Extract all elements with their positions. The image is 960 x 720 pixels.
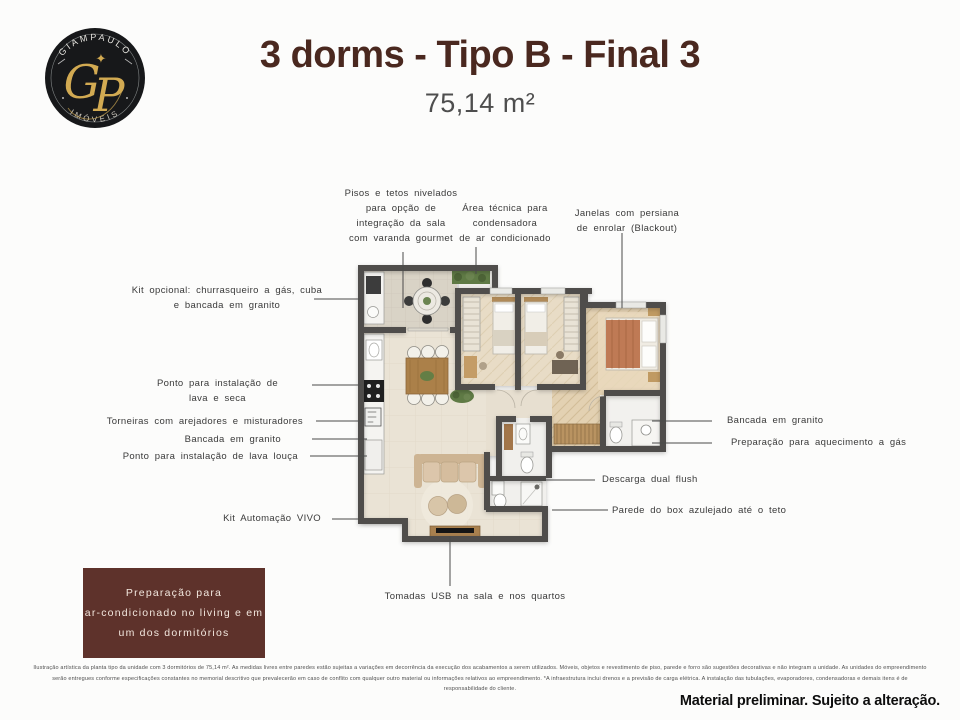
annotation-tomadas-usb: Tomadas USB na sala e nos quartos bbox=[377, 589, 573, 604]
annotation-kit-automacao: Kit Automação VIVO bbox=[150, 511, 321, 526]
annotation-bancada-dir: Bancada em granito bbox=[727, 413, 823, 428]
cuba-sink bbox=[368, 307, 379, 318]
highlight-box-ar-condicionado: Preparação para ar-condicionado no livin… bbox=[83, 568, 265, 658]
bath1-sink bbox=[516, 424, 530, 444]
nightstand bbox=[648, 372, 660, 382]
annotation-torneiras: Torneiras com arejadores e misturadores bbox=[103, 414, 303, 429]
wardrobe-1 bbox=[463, 297, 480, 351]
bath1-vanity bbox=[504, 424, 513, 450]
annotation-lava-e-seca: Ponto para instalação de lava e seca bbox=[125, 376, 310, 406]
pouf bbox=[429, 497, 448, 516]
annotation-aquecimento-gas: Preparação para aquecimento a gás bbox=[731, 435, 906, 450]
bed-1-headboard bbox=[492, 297, 516, 302]
annotation-janelas: Janelas com persiana de enrolar (Blackou… bbox=[549, 206, 705, 236]
sliding-door bbox=[408, 328, 448, 331]
annotation-parede-box: Parede do box azulejado até o teto bbox=[612, 503, 786, 518]
desk-1 bbox=[464, 356, 477, 378]
annotation-bancada-esq: Bancada em granito bbox=[101, 432, 281, 447]
desk-2 bbox=[552, 360, 578, 374]
toilet bbox=[610, 427, 622, 443]
toilet bbox=[521, 457, 533, 473]
cooktop bbox=[363, 380, 384, 402]
shower-head bbox=[535, 485, 540, 490]
annotation-descarga: Descarga dual flush bbox=[602, 472, 698, 487]
bed-2-headboard bbox=[524, 297, 548, 302]
grill bbox=[366, 276, 381, 294]
preliminary-notice: Material preliminar. Sujeito a alteração… bbox=[680, 693, 940, 709]
unit-area: 75,14 m² bbox=[0, 88, 960, 119]
annotation-lava-louca: Ponto para instalação de lava louça bbox=[100, 449, 298, 464]
floorplan-marketing-slide: { "logo": { "name_top": "GIAMPAULO", "na… bbox=[0, 0, 960, 720]
tv bbox=[436, 528, 474, 533]
wardrobe-2 bbox=[564, 297, 579, 351]
toilet bbox=[494, 494, 506, 508]
bath2-sink bbox=[492, 481, 504, 495]
pouf bbox=[448, 495, 467, 514]
sofa bbox=[423, 462, 440, 482]
fridge bbox=[365, 440, 382, 470]
legal-disclaimer: Ilustração artística da planta tipo da u… bbox=[25, 663, 935, 695]
annotation-kit-opcional: Kit opcional: churrasqueiro a gás, cuba … bbox=[122, 283, 332, 313]
centerpiece-plant bbox=[420, 371, 434, 381]
page-title: 3 dorms - Tipo B - Final 3 bbox=[0, 34, 960, 77]
vessel-sink bbox=[641, 425, 651, 435]
